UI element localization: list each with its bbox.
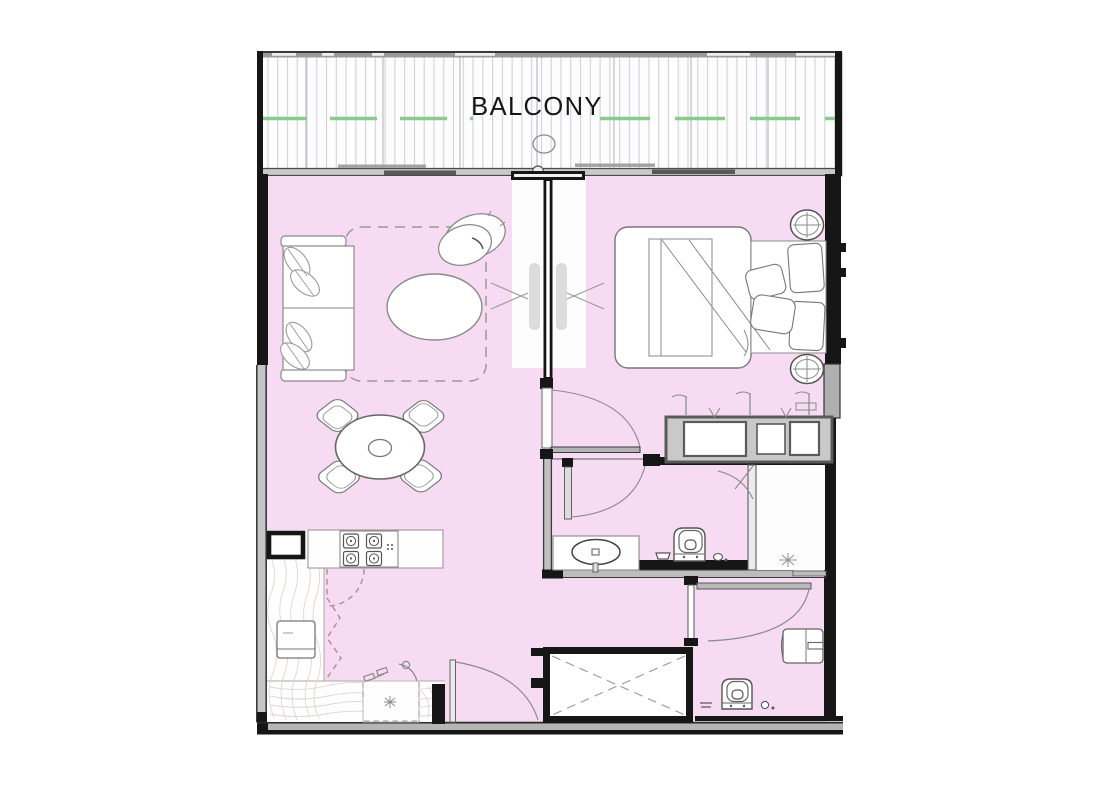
svg-text:BALCONY: BALCONY (471, 93, 603, 121)
